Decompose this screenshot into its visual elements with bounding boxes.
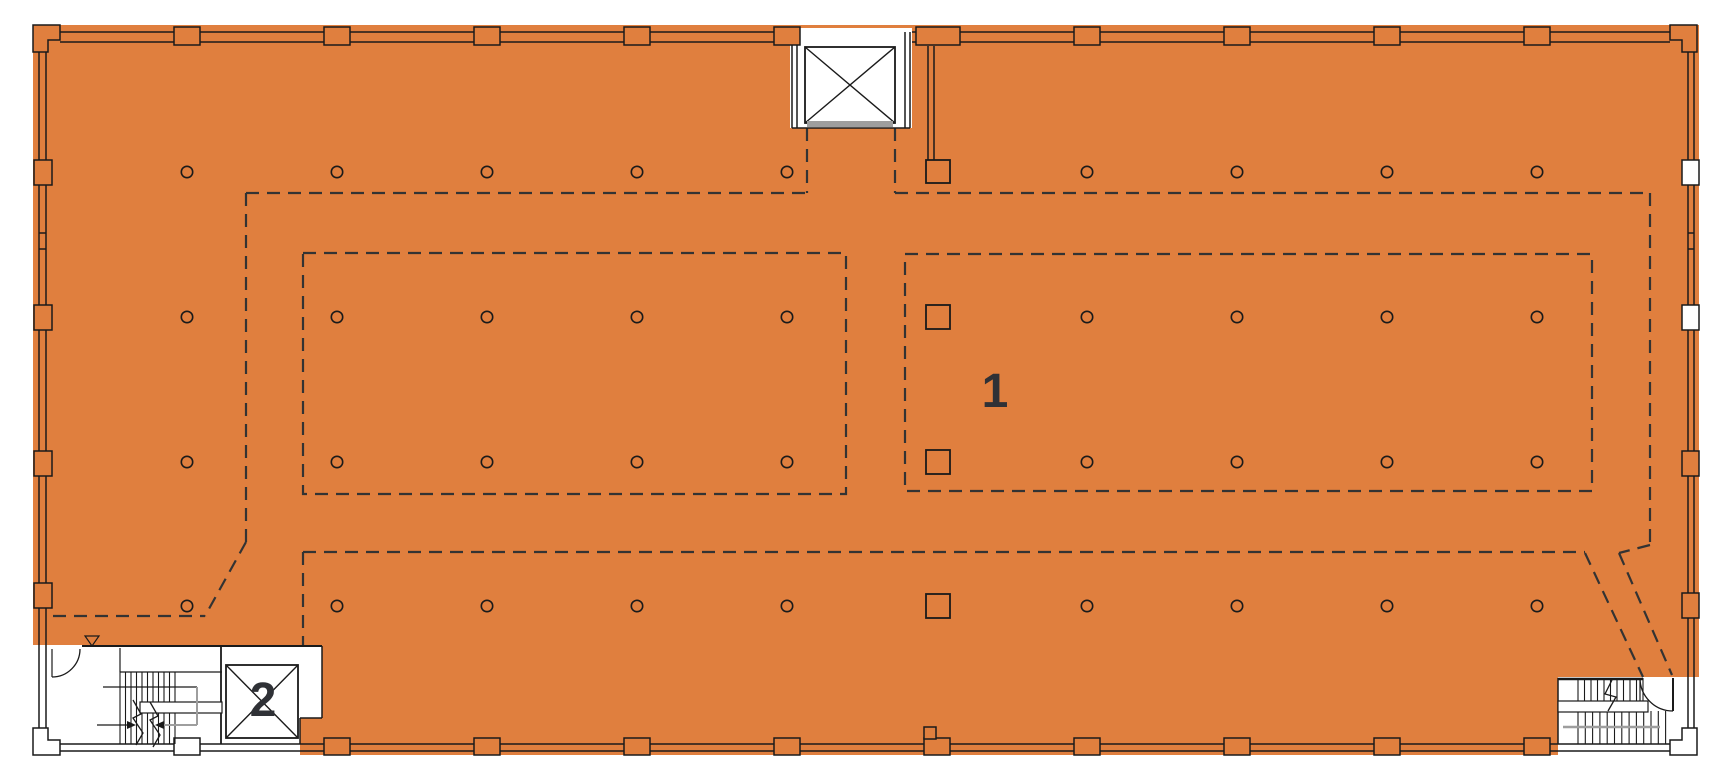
wall-pilaster xyxy=(1224,27,1250,45)
elevator-sill xyxy=(807,121,893,127)
wall-pilaster xyxy=(324,27,350,45)
zone-2-label[interactable]: 2 xyxy=(250,674,277,727)
wall-pilaster xyxy=(1524,738,1550,755)
wall-pilaster xyxy=(174,738,200,755)
wall-pilaster xyxy=(924,738,950,755)
wall-pilaster xyxy=(1074,738,1100,755)
stair-landing xyxy=(140,702,222,713)
wall-pilaster xyxy=(916,27,960,45)
wall-pilaster xyxy=(1374,27,1400,45)
stair-landing xyxy=(1558,701,1648,712)
wall-pilaster xyxy=(1682,305,1699,330)
floor-plan: 1 2 xyxy=(0,0,1714,780)
wall-pilaster xyxy=(474,27,500,45)
wall-pilaster xyxy=(1682,593,1699,618)
wall-pilaster xyxy=(34,583,52,608)
floor-plan-layers xyxy=(33,25,1699,755)
wall-pilaster xyxy=(174,27,200,45)
wall-pilaster xyxy=(624,738,650,755)
wall-pilaster xyxy=(34,451,52,476)
wall-pilaster xyxy=(1524,27,1550,45)
zone-1-label[interactable]: 1 xyxy=(982,365,1009,418)
wall-pilaster xyxy=(774,738,800,755)
wall-pilaster xyxy=(774,27,800,45)
wall-pilaster xyxy=(324,738,350,755)
wall-pilaster xyxy=(1374,738,1400,755)
wall-pilaster xyxy=(924,727,936,739)
wall-pilaster xyxy=(1224,738,1250,755)
wall-pilaster xyxy=(1682,451,1699,476)
wall-pilaster xyxy=(1074,27,1100,45)
wall-pilaster xyxy=(34,305,52,330)
wall-pilaster xyxy=(474,738,500,755)
wall-pilaster xyxy=(34,160,52,185)
wall-pilaster xyxy=(624,27,650,45)
wall-pilaster xyxy=(1682,160,1699,185)
floor-plan-viewport: 1 2 xyxy=(0,0,1714,780)
